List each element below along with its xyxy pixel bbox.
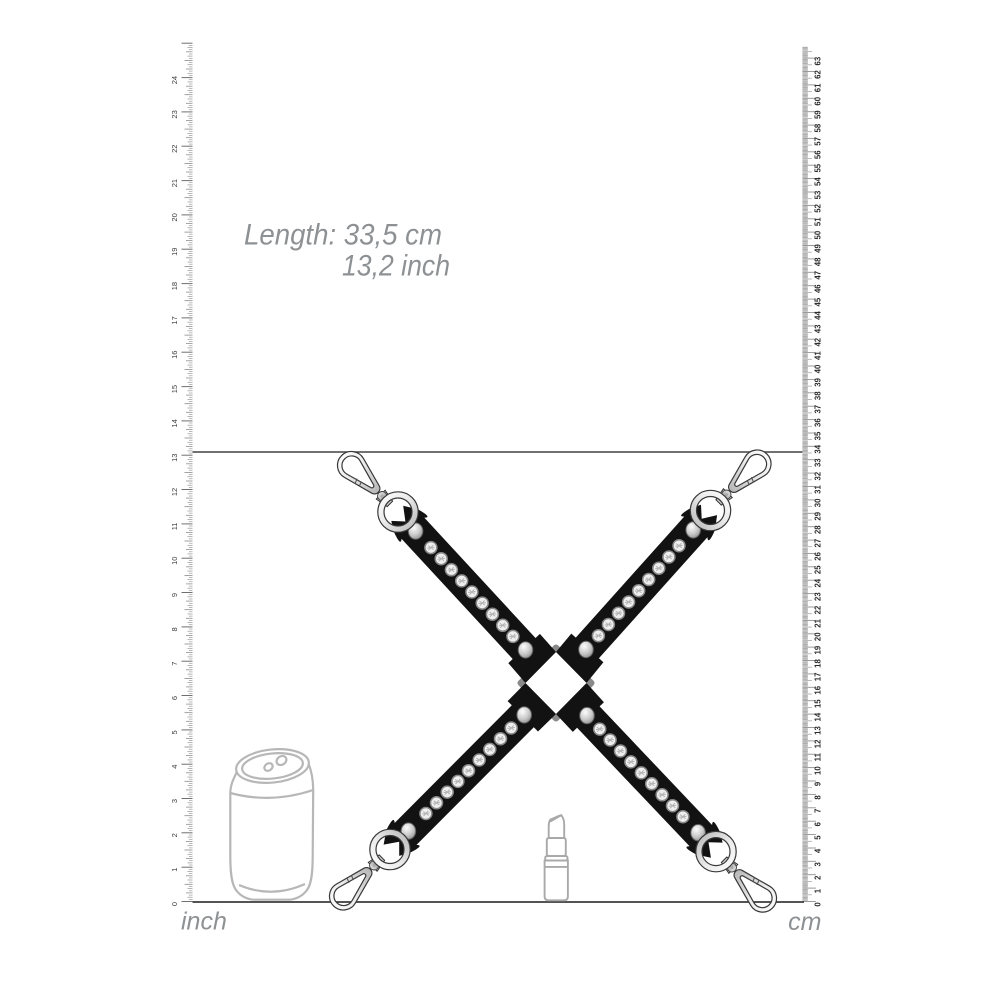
svg-text:16: 16: [170, 351, 179, 359]
svg-text:45: 45: [814, 297, 823, 306]
svg-text:49: 49: [814, 244, 823, 253]
svg-text:0: 0: [814, 902, 823, 907]
svg-text:17: 17: [170, 316, 179, 324]
svg-text:41: 41: [814, 351, 823, 360]
svg-text:29: 29: [814, 511, 823, 520]
svg-text:48: 48: [814, 257, 823, 266]
svg-text:35: 35: [814, 431, 823, 440]
svg-text:59: 59: [814, 110, 823, 119]
svg-text:6: 6: [814, 821, 823, 826]
svg-text:27: 27: [814, 539, 823, 548]
svg-text:58: 58: [814, 123, 823, 132]
svg-text:44: 44: [814, 311, 823, 320]
svg-text:11: 11: [170, 523, 179, 531]
svg-text:24: 24: [170, 76, 179, 84]
svg-text:cm: cm: [788, 908, 821, 936]
svg-text:61: 61: [814, 83, 823, 92]
svg-text:50: 50: [814, 230, 823, 239]
svg-text:13: 13: [814, 726, 823, 735]
svg-text:42: 42: [814, 337, 823, 346]
svg-text:15: 15: [170, 385, 179, 393]
svg-text:56: 56: [814, 150, 823, 159]
svg-text:3: 3: [814, 861, 823, 866]
svg-text:30: 30: [814, 498, 823, 507]
svg-text:1: 1: [170, 868, 179, 872]
svg-text:18: 18: [814, 659, 823, 668]
svg-text:60: 60: [814, 96, 823, 105]
svg-text:55: 55: [814, 163, 823, 172]
svg-text:5: 5: [170, 730, 179, 734]
svg-text:7: 7: [814, 809, 823, 813]
svg-text:12: 12: [814, 739, 823, 748]
svg-text:8: 8: [814, 795, 823, 800]
svg-text:53: 53: [814, 190, 823, 199]
svg-text:25: 25: [814, 565, 823, 574]
svg-text:43: 43: [814, 324, 823, 333]
svg-text:8: 8: [170, 627, 179, 631]
svg-text:31: 31: [814, 485, 823, 494]
svg-text:18: 18: [170, 282, 179, 290]
svg-text:33: 33: [814, 458, 823, 467]
svg-text:32: 32: [814, 471, 823, 480]
svg-text:2: 2: [814, 875, 823, 880]
svg-text:13: 13: [170, 454, 179, 462]
svg-text:40: 40: [814, 364, 823, 373]
svg-text:26: 26: [814, 551, 823, 560]
svg-text:3: 3: [170, 799, 179, 803]
svg-text:11: 11: [814, 752, 823, 761]
svg-text:36: 36: [814, 418, 823, 427]
svg-text:22: 22: [170, 145, 179, 153]
svg-text:9: 9: [814, 781, 823, 786]
svg-text:20: 20: [170, 213, 179, 221]
svg-text:17: 17: [814, 673, 823, 682]
svg-text:15: 15: [814, 699, 823, 708]
svg-text:34: 34: [814, 444, 823, 453]
svg-text:23: 23: [170, 110, 179, 118]
svg-text:1: 1: [814, 888, 823, 893]
svg-text:9: 9: [170, 593, 179, 597]
svg-text:14: 14: [814, 712, 823, 721]
svg-text:46: 46: [814, 284, 823, 293]
svg-text:22: 22: [814, 605, 823, 614]
svg-text:13,2 inch: 13,2 inch: [342, 250, 450, 283]
svg-text:0: 0: [170, 902, 179, 906]
svg-text:14: 14: [170, 419, 179, 427]
svg-text:38: 38: [814, 391, 823, 400]
svg-text:47: 47: [814, 271, 823, 280]
svg-text:24: 24: [814, 578, 823, 587]
svg-text:inch: inch: [181, 908, 227, 936]
svg-text:57: 57: [814, 137, 823, 146]
svg-text:23: 23: [814, 592, 823, 601]
svg-text:62: 62: [814, 70, 823, 79]
svg-text:37: 37: [814, 405, 823, 414]
svg-text:6: 6: [170, 696, 179, 700]
svg-text:19: 19: [814, 645, 823, 654]
svg-text:21: 21: [170, 179, 179, 187]
svg-text:39: 39: [814, 377, 823, 386]
svg-text:12: 12: [170, 488, 179, 496]
svg-text:20: 20: [814, 632, 823, 641]
svg-text:54: 54: [814, 177, 823, 186]
svg-text:Length: 33,5 cm: Length: 33,5 cm: [244, 219, 442, 252]
svg-text:4: 4: [814, 848, 823, 853]
svg-text:28: 28: [814, 525, 823, 534]
svg-text:10: 10: [170, 557, 179, 565]
svg-text:4: 4: [170, 765, 179, 769]
svg-text:52: 52: [814, 203, 823, 212]
svg-text:51: 51: [814, 217, 823, 226]
svg-text:63: 63: [814, 56, 823, 65]
svg-text:19: 19: [170, 248, 179, 256]
svg-text:21: 21: [814, 618, 823, 627]
svg-text:5: 5: [814, 835, 823, 840]
svg-text:10: 10: [814, 766, 823, 775]
svg-text:16: 16: [814, 685, 823, 694]
svg-text:7: 7: [170, 662, 179, 666]
svg-text:2: 2: [170, 833, 179, 837]
